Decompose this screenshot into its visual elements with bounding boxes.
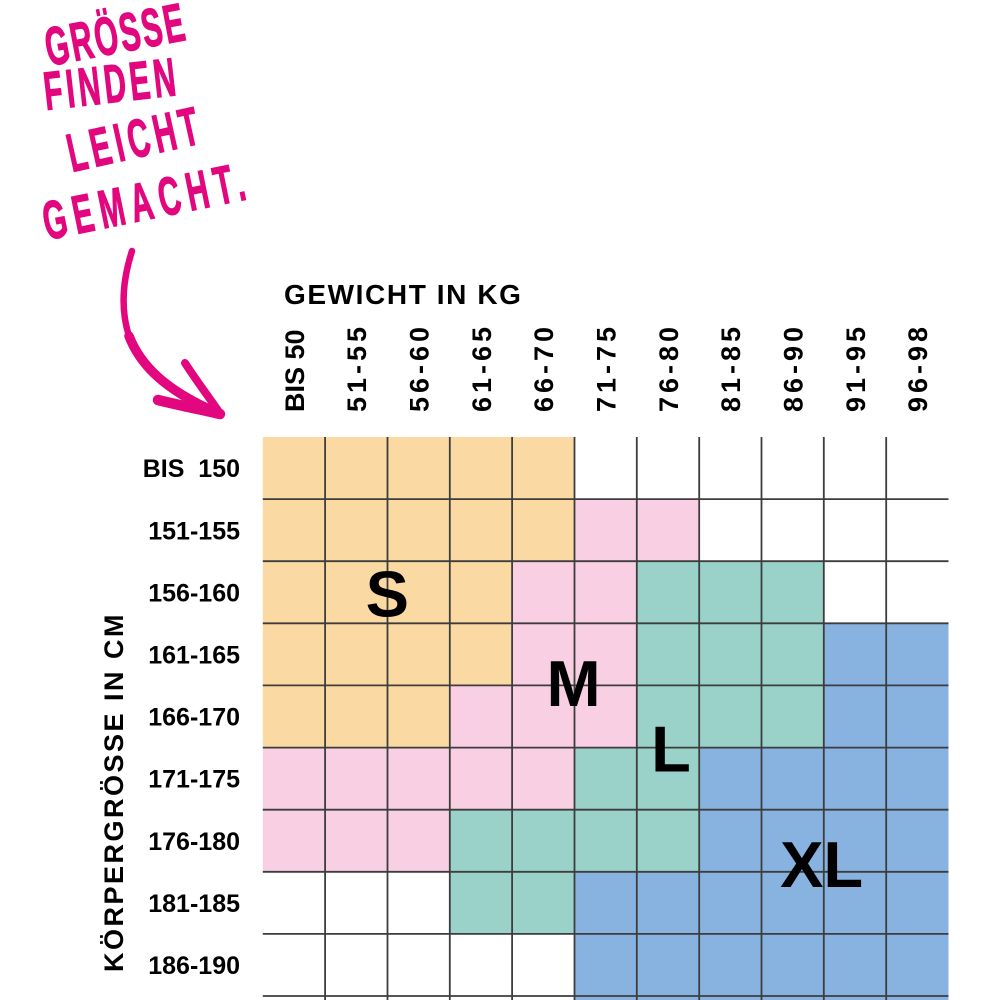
svg-text:151-155: 151-155 bbox=[148, 517, 240, 545]
svg-text:BIS 50: BIS 50 bbox=[280, 329, 310, 412]
svg-text:61-65: 61-65 bbox=[467, 323, 497, 412]
svg-text:KÖRPERGRÖSSE IN CM: KÖRPERGRÖSSE IN CM bbox=[99, 612, 129, 972]
svg-text:176-180: 176-180 bbox=[148, 828, 240, 856]
svg-text:86-90: 86-90 bbox=[779, 323, 809, 412]
svg-text:51-55: 51-55 bbox=[342, 323, 372, 412]
svg-text:81-85: 81-85 bbox=[716, 323, 746, 412]
svg-text:156-160: 156-160 bbox=[148, 579, 240, 607]
svg-text:M: M bbox=[547, 647, 601, 720]
svg-text:161-165: 161-165 bbox=[148, 642, 240, 670]
svg-text:171-175: 171-175 bbox=[148, 766, 240, 794]
svg-text:XL: XL bbox=[780, 828, 863, 901]
svg-text:186-190: 186-190 bbox=[148, 952, 240, 980]
svg-text:66-70: 66-70 bbox=[529, 323, 559, 412]
svg-text:BIS 150: BIS 150 bbox=[143, 455, 240, 483]
svg-text:71-75: 71-75 bbox=[592, 323, 622, 412]
svg-text:GEWICHT IN KG: GEWICHT IN KG bbox=[284, 279, 523, 310]
svg-text:56-60: 56-60 bbox=[405, 323, 435, 412]
svg-text:S: S bbox=[366, 558, 409, 631]
svg-text:76-80: 76-80 bbox=[654, 323, 684, 412]
svg-text:L: L bbox=[651, 713, 691, 786]
svg-text:96-98: 96-98 bbox=[903, 323, 933, 412]
svg-text:166-170: 166-170 bbox=[148, 704, 240, 732]
svg-text:181-185: 181-185 bbox=[148, 890, 240, 918]
svg-text:91-95: 91-95 bbox=[841, 323, 871, 412]
